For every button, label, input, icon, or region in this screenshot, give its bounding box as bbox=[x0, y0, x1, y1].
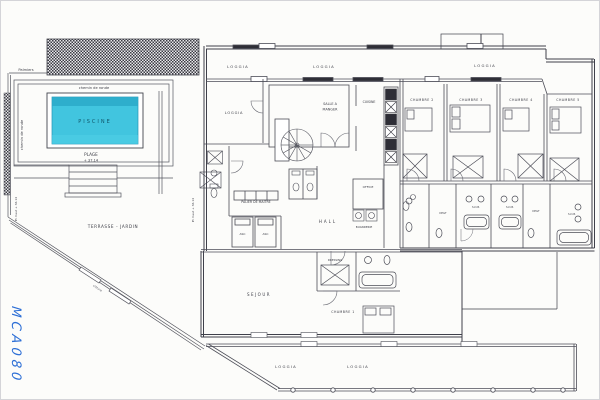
label-buanderie: BUANDERIE bbox=[356, 225, 373, 229]
label-chambre-4: CHAMBRE 4 bbox=[509, 98, 533, 102]
label-palier-de-maitre: PALIER DE MAITRE bbox=[241, 200, 270, 204]
label-asc-2: ASC bbox=[262, 232, 268, 236]
label-loggia-room: LOGGIA bbox=[225, 111, 244, 115]
bedroom-partition-walls bbox=[400, 84, 592, 248]
label-piscine: PISCINE bbox=[78, 119, 112, 125]
label-office: OFFICE bbox=[363, 185, 374, 189]
bathroom-fixtures-right-wing bbox=[406, 196, 591, 245]
label-loggia-right-wing: LOGGIA bbox=[474, 63, 496, 68]
wardrobes-right-wing bbox=[403, 154, 579, 181]
label-loggia-top-1: LOGGIA bbox=[227, 64, 249, 69]
label-terrasse-jardin: TERRASSE - JARDIN bbox=[87, 224, 139, 229]
label-asc-1: ASC bbox=[239, 232, 245, 236]
label-plage: PLAGE bbox=[84, 152, 98, 157]
bed-chambre1 bbox=[363, 306, 394, 333]
label-level-right: Pl. haut + 36.14 bbox=[191, 198, 195, 222]
label-chambre-5: CHAMBRE 5 bbox=[556, 98, 580, 102]
label-level-left: Pl. haut + 36.14 bbox=[14, 197, 18, 221]
pergola-trellis bbox=[47, 39, 199, 75]
spiral-staircase bbox=[275, 119, 313, 161]
label-chemin-de-ronde-side: chemin de ronde bbox=[20, 119, 24, 150]
label-sdb-1: S.D.B. bbox=[472, 205, 480, 209]
label-chambre-1: CHAMBRE 1 bbox=[331, 310, 355, 314]
label-loggia-bottom-1: LOGGIA bbox=[275, 364, 297, 369]
label-chambre-2: CHAMBRE 2 bbox=[410, 98, 434, 102]
label-chemin-de-ronde-top: chemin de ronde bbox=[79, 86, 110, 90]
label-salle-a-manger-1: SALLE A bbox=[323, 102, 338, 106]
label-plage-level: + 37.14 bbox=[84, 159, 99, 163]
kitchen-appliance-strip bbox=[386, 89, 397, 163]
label-degt-1: DEGT bbox=[439, 211, 447, 215]
label-cloture: clôture bbox=[92, 284, 103, 293]
label-sdb-2: S.D.B. bbox=[506, 205, 514, 209]
label-hall: HALL bbox=[319, 219, 337, 224]
label-sejour: SEJOUR bbox=[247, 292, 271, 297]
loggia-walls bbox=[206, 44, 592, 95]
label-dressing: DRESSING bbox=[328, 258, 343, 262]
label-loggia-top-2: LOGGIA bbox=[313, 64, 335, 69]
label-degt-2: DEGT bbox=[532, 209, 540, 213]
label-chambre-3: CHAMBRE 3 bbox=[459, 98, 483, 102]
floor-plan-drawing: Palmiers chemin de ronde chemin de ronde… bbox=[1, 1, 600, 400]
label-loggia-bottom-2: LOGGIA bbox=[347, 364, 369, 369]
interior-walls-main bbox=[201, 79, 462, 338]
label-sdb-3: S.D.B. bbox=[568, 212, 576, 216]
bottom-loggia bbox=[206, 342, 577, 393]
beds-right-wing bbox=[405, 105, 581, 133]
handwritten-plan-number: MCA080 bbox=[5, 296, 23, 394]
label-cuisine: CUISINE bbox=[363, 100, 376, 104]
label-palmiers: Palmiers bbox=[18, 68, 33, 72]
label-salle-a-manger-2: MANGER bbox=[323, 108, 339, 112]
floor-plan-sheet: Palmiers chemin de ronde chemin de ronde… bbox=[0, 0, 600, 400]
master-bath-fixtures bbox=[208, 151, 315, 198]
